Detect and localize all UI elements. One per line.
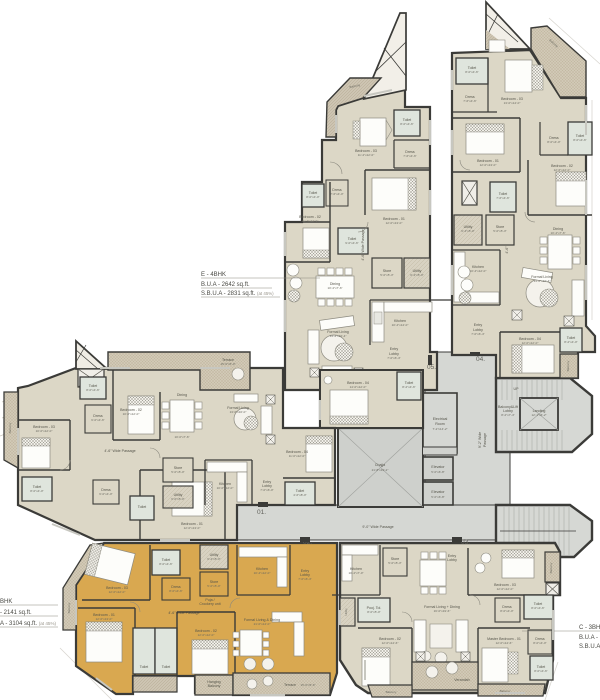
svg-text:8'-2"x4'-6": 8'-2"x4'-6": [402, 385, 415, 389]
svg-text:10'-4"x14'-0": 10'-4"x14'-0": [392, 323, 409, 327]
svg-text:8'-0"x4'-6": 8'-0"x4'-6": [86, 388, 99, 392]
svg-text:12'-6"x12'-0": 12'-6"x12'-0": [554, 168, 571, 172]
svg-text:Entry: Entry: [390, 347, 399, 351]
svg-text:21'-0"x14'-0": 21'-0"x14'-0": [254, 622, 271, 626]
svg-text:7'-6"x4'-6": 7'-6"x4'-6": [463, 99, 476, 103]
svg-text:8'-0"x4'-0": 8'-0"x4'-0": [547, 140, 560, 144]
svg-text:8'-0"x4'-0": 8'-0"x4'-0": [30, 489, 43, 493]
svg-text:8'-0"x4'-6": 8'-0"x4'-6": [534, 669, 547, 673]
svg-text:10'-4"x7'-6": 10'-4"x7'-6": [550, 231, 565, 235]
svg-text:Balcony: Balcony: [8, 422, 12, 433]
svg-text:5'-0"x5'-0": 5'-0"x5'-0": [207, 584, 220, 588]
svg-text:04.: 04.: [476, 356, 485, 363]
svg-text:E - 4BHK: E - 4BHK: [201, 272, 226, 278]
svg-text:01.: 01.: [257, 509, 266, 516]
svg-text:13'-0"x14'-0": 13'-0"x14'-0": [504, 101, 521, 105]
svg-text:13'-4"x16'-4": 13'-4"x16'-4": [330, 334, 347, 338]
svg-text:12'-0"x14'-6": 12'-0"x14'-6": [496, 641, 513, 645]
svg-text:5'-0"x5'-3": 5'-0"x5'-3": [493, 229, 506, 233]
svg-text:Electrical: Electrical: [433, 417, 448, 421]
svg-text:03.: 03.: [461, 539, 470, 546]
svg-text:7'-0"x6'-4": 7'-0"x6'-4": [298, 577, 311, 581]
svg-text:10'-0"x12'-0": 10'-0"x12'-0": [123, 412, 140, 416]
svg-text:6'-0"x4'-6": 6'-0"x4'-6": [91, 418, 104, 422]
svg-text:5'-0"x5'-0": 5'-0"x5'-0": [171, 470, 184, 474]
svg-text:12'-0"x13'-0": 12'-0"x13'-0": [386, 221, 403, 225]
svg-text:Toilet: Toilet: [140, 665, 148, 669]
svg-text:Balcony: Balcony: [566, 360, 570, 371]
svg-text:5'-0"x5'-3": 5'-0"x5'-3": [388, 561, 401, 565]
svg-text:11'-0"x12'-0": 11'-0"x12'-0": [289, 454, 306, 458]
svg-text:C - 3BH: C - 3BH: [579, 625, 600, 631]
svg-text:Balcony: Balcony: [386, 690, 397, 694]
svg-text:6'-4"x5'-0": 6'-4"x5'-0": [461, 229, 474, 233]
svg-text:12'-0"x13'-0": 12'-0"x13'-0": [480, 163, 497, 167]
svg-text:5'-0"x6'-8": 5'-0"x6'-8": [431, 495, 444, 499]
svg-text:Lobby: Lobby: [447, 558, 457, 562]
svg-text:12'-0"x12'-0": 12'-0"x12'-0": [198, 633, 215, 637]
svg-text:13'-6"x16'-4": 13'-6"x16'-4": [534, 279, 551, 283]
svg-text:8'-0"x5'-0": 8'-0"x5'-0": [367, 610, 380, 614]
svg-text:15'-0"x5'-6": 15'-0"x5'-6": [300, 683, 315, 687]
svg-text:7'-0"x6'-4": 7'-0"x6'-4": [387, 356, 400, 360]
svg-text:Crockery unit: Crockery unit: [199, 602, 220, 606]
svg-text:Balcony: Balcony: [67, 602, 71, 613]
svg-text:B.U.A - 2642 sq.ft.: B.U.A - 2642 sq.ft.: [201, 282, 250, 288]
svg-text:Verandah: Verandah: [454, 678, 469, 682]
svg-text:Utility: Utility: [344, 608, 348, 616]
svg-text:10'-0"x12'-0": 10'-0"x12'-0": [36, 429, 53, 433]
svg-text:Toilet: Toilet: [162, 665, 170, 669]
svg-text:12'-0"x14'-6": 12'-0"x14'-6": [382, 641, 399, 645]
svg-text:8'-0"x4'-0": 8'-0"x4'-0": [533, 641, 546, 645]
svg-text:9'-0"x4'-6": 9'-0"x4'-6": [345, 241, 358, 245]
svg-text:7'-2"x14'-2": 7'-2"x14'-2": [432, 427, 447, 431]
svg-text:Balcony: Balcony: [549, 562, 553, 573]
svg-text:9'-2" Wide: 9'-2" Wide: [478, 432, 482, 448]
svg-text:8'-0"x4'-6": 8'-0"x4'-6": [465, 70, 478, 74]
svg-text:12'-0"x12'-0": 12'-0"x12'-0": [497, 587, 514, 591]
svg-text:14'-0"x12'-0": 14'-0"x12'-0": [350, 385, 367, 389]
svg-text:7'-0"x6'-0": 7'-0"x6'-0": [260, 488, 273, 492]
svg-text:8'-0"x4'-6": 8'-0"x4'-6": [573, 138, 586, 142]
svg-text:- 2141 sq.ft.: - 2141 sq.ft.: [0, 610, 32, 616]
svg-text:BHK: BHK: [0, 599, 12, 605]
svg-text:UP: UP: [514, 387, 520, 391]
svg-text:11'-4"x12'-0": 11'-4"x12'-0": [358, 153, 375, 157]
svg-text:7'-6"x4'-0": 7'-6"x4'-0": [330, 192, 343, 196]
svg-text:7'-0"x6'-4": 7'-0"x6'-4": [471, 332, 484, 336]
svg-text:Chajja: Chajja: [375, 463, 385, 467]
svg-text:6'-4"x5'-0": 6'-4"x5'-0": [207, 557, 220, 561]
svg-text:6'-0"x5'-0": 6'-0"x5'-0": [171, 497, 184, 501]
svg-text:9'-0" Wide Passage: 9'-0" Wide Passage: [362, 525, 393, 529]
svg-text:10'-0"x12'-0": 10'-0"x12'-0": [217, 486, 234, 490]
svg-text:8'-2"x4'-0": 8'-2"x4'-0": [564, 340, 577, 344]
svg-text:10'-0"x7'-6": 10'-0"x7'-6": [174, 435, 189, 439]
svg-text:15'-0"x5'-0": 15'-0"x5'-0": [220, 362, 235, 366]
svg-text:8'-0"x4'-6": 8'-0"x4'-6": [169, 589, 182, 593]
svg-text:10'-4"x7'-6": 10'-4"x7'-6": [327, 286, 342, 290]
svg-text:Balcony: Balcony: [208, 684, 221, 688]
svg-text:Dining: Dining: [177, 393, 187, 397]
svg-text:10'-4"x7'-0": 10'-4"x7'-0": [348, 571, 363, 575]
svg-text:B.U.A -: B.U.A -: [579, 635, 598, 641]
svg-text:13'-0"x16'-0": 13'-0"x16'-0": [230, 410, 247, 414]
svg-text:8'-0"x4'-0": 8'-0"x4'-0": [306, 195, 319, 199]
svg-text:12'-1"x6'-2": 12'-1"x6'-2": [531, 413, 546, 417]
svg-text:5'-0"x5'-3": 5'-0"x5'-3": [380, 273, 393, 277]
svg-text:6'-4"x5'-0": 6'-4"x5'-0": [410, 273, 423, 277]
svg-text:4'-6"x8'-0": 4'-6"x8'-0": [293, 493, 306, 497]
svg-text:8'-0"x4'-6": 8'-0"x4'-6": [400, 122, 413, 126]
svg-text:Entry: Entry: [474, 323, 483, 327]
svg-text:8'-0"x4'-6": 8'-0"x4'-6": [531, 606, 544, 610]
svg-text:12'-0"x12'-0": 12'-0"x12'-0": [522, 341, 539, 345]
svg-text:8'-0"x4'-6": 8'-0"x4'-6": [159, 562, 172, 566]
svg-text:Room: Room: [435, 422, 445, 426]
svg-text:6'-0"x4'-0": 6'-0"x4'-0": [99, 492, 112, 496]
svg-text:4'-6" Wide Passage: 4'-6" Wide Passage: [104, 449, 135, 453]
svg-text:12'-0"x13'-0": 12'-0"x13'-0": [184, 526, 201, 530]
svg-text:7'-6"x4'-6": 7'-6"x4'-6": [403, 154, 416, 158]
svg-text:4'-6" Wide Passage: 4'-6" Wide Passage: [361, 229, 365, 260]
svg-text:16'-0"x19'-6": 16'-0"x19'-6": [434, 609, 451, 613]
svg-text:Terrace: Terrace: [284, 683, 296, 687]
svg-text:Passage: Passage: [483, 433, 487, 447]
svg-text:11'-4"x12'-0": 11'-4"x12'-0": [302, 219, 319, 223]
svg-text:10'-4"x12'-0": 10'-4"x12'-0": [470, 269, 487, 273]
svg-text:8'-0"x4'-0": 8'-0"x4'-0": [500, 609, 513, 613]
svg-text:21'-8"x19'-2": 21'-8"x19'-2": [372, 468, 389, 472]
svg-text:S.B.U.A: S.B.U.A: [579, 644, 600, 650]
svg-text:12'-0"x12'-0": 12'-0"x12'-0": [109, 590, 126, 594]
svg-text:10'-4"x12'-0": 10'-4"x12'-0": [254, 571, 271, 575]
svg-text:Elevator: Elevator: [431, 465, 445, 469]
svg-text:8'-2"x7'-4": 8'-2"x7'-4": [501, 413, 514, 417]
svg-text:Toilet: Toilet: [138, 505, 146, 509]
svg-text:Elevator: Elevator: [431, 490, 445, 494]
svg-text:05.: 05.: [427, 364, 436, 371]
svg-text:5'-0"x6'-8": 5'-0"x6'-8": [431, 470, 444, 474]
svg-text:7'-6"x4'-6": 7'-6"x4'-6": [496, 196, 509, 200]
svg-text:12'-0"x13'-0": 12'-0"x13'-0": [96, 617, 113, 621]
